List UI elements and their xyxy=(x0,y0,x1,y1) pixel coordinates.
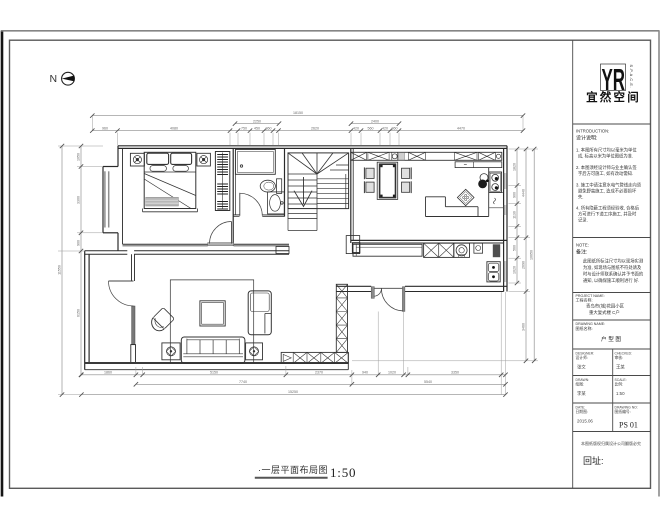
svg-text:4. 所有隐蔽工程须经验收, 合格后: 4. 所有隐蔽工程须经验收, 合格后 xyxy=(576,205,640,212)
svg-text:2690: 2690 xyxy=(522,261,526,269)
svg-text:失.: 失. xyxy=(578,194,584,201)
svg-text:560: 560 xyxy=(513,245,517,251)
svg-text:1. 本图所有尺寸均以毫米为单位: 1. 本图所有尺寸均以毫米为单位 xyxy=(576,147,637,154)
svg-text:450: 450 xyxy=(254,126,260,130)
svg-text:2250: 2250 xyxy=(253,119,261,123)
svg-text:日期图:: 日期图: xyxy=(576,409,588,414)
svg-text:940: 940 xyxy=(362,370,368,374)
svg-text:DESIGNER:: DESIGNER: xyxy=(576,352,595,356)
svg-text:备注:: 备注: xyxy=(576,249,587,256)
svg-text:18150: 18150 xyxy=(293,111,303,115)
svg-text:4440: 4440 xyxy=(522,189,526,197)
svg-text:本图纸版权归属设计公司翻版必究: 本图纸版权归属设计公司翻版必究 xyxy=(581,440,641,446)
svg-text:900: 900 xyxy=(77,240,81,246)
svg-text:户 型 图: 户 型 图 xyxy=(601,335,621,343)
svg-text:360: 360 xyxy=(266,126,272,130)
svg-text:3350: 3350 xyxy=(451,370,459,374)
svg-text:青岛市(城)花园小区: 青岛市(城)花园小区 xyxy=(586,303,625,310)
svg-text:420: 420 xyxy=(382,126,388,130)
svg-text:回址:: 回址: xyxy=(583,455,604,466)
svg-text:1130: 1130 xyxy=(513,211,517,219)
svg-text:N: N xyxy=(50,73,58,85)
svg-text:4080: 4080 xyxy=(170,126,178,130)
svg-text:360: 360 xyxy=(392,126,398,130)
svg-text:1820: 1820 xyxy=(513,163,517,171)
svg-text:SCALE:: SCALE: xyxy=(615,378,627,382)
svg-text:INTRODUCTION:: INTRODUCTION: xyxy=(576,129,609,134)
svg-text:2620: 2620 xyxy=(311,126,319,130)
svg-text:重大复式楼 C户: 重大复式楼 C户 xyxy=(589,309,620,316)
svg-text:900: 900 xyxy=(513,192,517,198)
svg-text:设计说明:: 设计说明: xyxy=(576,135,597,142)
svg-text:1050: 1050 xyxy=(77,153,81,161)
svg-text:CHECKED:: CHECKED: xyxy=(615,352,633,356)
svg-text:560: 560 xyxy=(368,126,374,130)
svg-text:3300: 3300 xyxy=(77,196,81,204)
svg-text:1:50: 1:50 xyxy=(616,391,625,396)
svg-text:3460: 3460 xyxy=(522,323,526,331)
svg-text:成, 标高以米为单位图纸为准.: 成, 标高以米为单位图纸为准. xyxy=(578,153,633,160)
svg-text:设计师:: 设计师: xyxy=(576,355,588,360)
svg-text:2400: 2400 xyxy=(371,119,379,123)
svg-text:此图纸所标注尺寸均以现场实测: 此图纸所标注尺寸均以现场实测 xyxy=(583,258,643,265)
svg-text:S.P.A.C.E.: S.P.A.C.E. xyxy=(629,65,633,89)
svg-text:避免野蛮施工, 造成不必要损坏: 避免野蛮施工, 造成不必要损坏 xyxy=(578,188,637,195)
svg-text:2015.06: 2015.06 xyxy=(577,419,593,424)
svg-text:图纸名称:: 图纸名称: xyxy=(576,325,593,331)
svg-text:DRAWN:: DRAWN: xyxy=(576,378,590,382)
svg-text:·一层平面布局图: ·一层平面布局图 xyxy=(258,464,328,475)
svg-text:为准, 如现场与图纸不符处请及: 为准, 如现场与图纸不符处请及 xyxy=(583,264,642,271)
svg-text:5150: 5150 xyxy=(210,370,218,374)
svg-text:2370: 2370 xyxy=(315,370,323,374)
svg-text:15250: 15250 xyxy=(288,390,298,394)
svg-text:1020: 1020 xyxy=(388,370,396,374)
svg-text:DRAWING NO:: DRAWING NO: xyxy=(615,406,638,410)
svg-text:750: 750 xyxy=(241,126,247,130)
svg-text:宜然空间: 宜然空间 xyxy=(586,90,641,104)
svg-text:李某: 李某 xyxy=(577,390,586,397)
svg-text:3. 施工中请注意水电气管线走向须: 3. 施工中请注意水电气管线走向须 xyxy=(576,182,642,189)
svg-text:图纸编号:: 图纸编号: xyxy=(615,409,631,414)
svg-text:工程名称:: 工程名称: xyxy=(576,297,593,303)
svg-text:2. 本图须经设计师与业主确认签: 2. 本图须经设计师与业主确认签 xyxy=(576,164,637,171)
svg-text:10650: 10650 xyxy=(530,250,534,260)
svg-text:NOTE:: NOTE: xyxy=(576,243,589,248)
svg-text:张文: 张文 xyxy=(577,364,586,371)
svg-text:960: 960 xyxy=(102,126,108,130)
svg-text:记录.: 记录. xyxy=(578,217,588,223)
svg-text:1860: 1860 xyxy=(104,370,112,374)
svg-text:6150: 6150 xyxy=(77,309,81,317)
svg-text:绘图:: 绘图: xyxy=(576,382,585,387)
svg-text:通知, 以确保施工顺利进行 好.: 通知, 以确保施工顺利进行 好. xyxy=(583,277,639,284)
svg-text:方可进行下道工序施工, 并及时: 方可进行下道工序施工, 并及时 xyxy=(578,211,637,218)
svg-text:PS 01: PS 01 xyxy=(619,421,638,430)
svg-text:字后方可施工, 如有改动需知.: 字后方可施工, 如有改动需知. xyxy=(578,170,633,177)
svg-text:7740: 7740 xyxy=(239,380,247,384)
svg-text:1020: 1020 xyxy=(513,266,517,274)
svg-text:420: 420 xyxy=(353,126,359,130)
svg-text:比例:: 比例: xyxy=(615,382,624,387)
svg-text:1:50: 1:50 xyxy=(330,465,356,480)
svg-text:时与设计师联系确认并予书面的: 时与设计师联系确认并予书面的 xyxy=(583,271,643,278)
svg-text:4470: 4470 xyxy=(457,126,465,130)
svg-text:审核:: 审核: xyxy=(615,355,624,360)
svg-text:5540: 5540 xyxy=(424,380,432,384)
svg-text:DATE:: DATE: xyxy=(576,406,586,410)
svg-text:11550: 11550 xyxy=(58,265,62,275)
